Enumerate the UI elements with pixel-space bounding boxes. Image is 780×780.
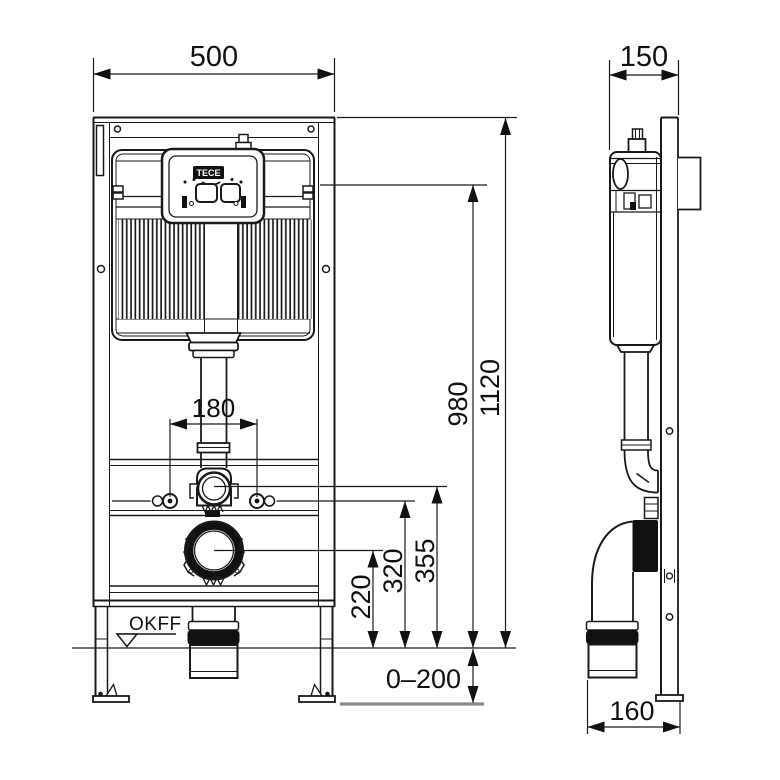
wall-bracket-left [97, 126, 104, 176]
dim-bend-height: 355 [410, 487, 443, 649]
frame-screw-left [115, 126, 121, 132]
dim-outlet-offset-label: 160 [609, 696, 654, 726]
flush-actuator: TECE [162, 135, 264, 224]
side-drain-bend [586, 520, 658, 678]
dim-bolt-spacing-label: 180 [192, 393, 235, 423]
dim-front-width: 500 [94, 41, 335, 112]
foot-plate-right [299, 696, 335, 702]
dim-front-width-label: 500 [190, 41, 238, 73]
dim-bend-height-label: 355 [410, 538, 440, 583]
fill-valve [613, 159, 628, 189]
vent-stub [239, 135, 248, 143]
side-pipe-seal [586, 630, 639, 645]
flush-button-left [196, 184, 217, 202]
dim-drain-height-label: 220 [346, 574, 376, 619]
water-inlet-nut [633, 129, 643, 140]
technical-drawing-page: TECE [0, 0, 780, 780]
front-view: TECE [72, 41, 517, 704]
cistern-insulation-ribs-right [238, 220, 312, 320]
dim-foot-adjustment: 0–200 [386, 649, 479, 703]
side-wall-bracket [678, 158, 701, 210]
side-foot-plate [656, 695, 683, 701]
installation-frame-drawing: TECE [0, 0, 780, 780]
rail-hole-left [98, 266, 105, 273]
side-flush-pipe [622, 352, 659, 519]
water-inlet [629, 139, 646, 152]
dim-bolt-height-label: 320 [378, 548, 408, 593]
frame-screw-right [308, 126, 314, 132]
dim-side-depth: 150 [610, 41, 679, 150]
pipe-seal [188, 630, 240, 645]
drain-bend [184, 511, 244, 585]
rail-hole-right [323, 266, 330, 273]
brand-logo-label: TECE [196, 168, 220, 178]
dim-bolt-height: 320 [378, 501, 411, 648]
dim-side-depth-label: 150 [620, 41, 668, 73]
level-marker-icon [117, 634, 137, 647]
dim-frame-height-label: 1120 [475, 359, 505, 417]
dim-foot-adjustment-label: 0–200 [386, 664, 461, 694]
foot-plate-left [93, 696, 129, 702]
floor-level-label: OKFF [129, 614, 182, 635]
side-view: 150 160 [586, 41, 701, 734]
wall-connection-seal [633, 520, 659, 572]
cistern-insulation-ribs-left [119, 220, 205, 320]
dim-actuator-height-label: 980 [443, 381, 473, 426]
dim-drain-height: 220 [346, 551, 379, 649]
flush-bend-outlet [190, 469, 238, 513]
dim-actuator-height: 980 [443, 185, 479, 648]
side-cistern [610, 129, 661, 352]
dim-frame-height: 1120 [475, 118, 511, 648]
flush-button-right [221, 184, 240, 202]
drain-pipe [188, 607, 240, 678]
dim-outlet-offset: 160 [588, 680, 681, 734]
side-rail [656, 118, 701, 702]
